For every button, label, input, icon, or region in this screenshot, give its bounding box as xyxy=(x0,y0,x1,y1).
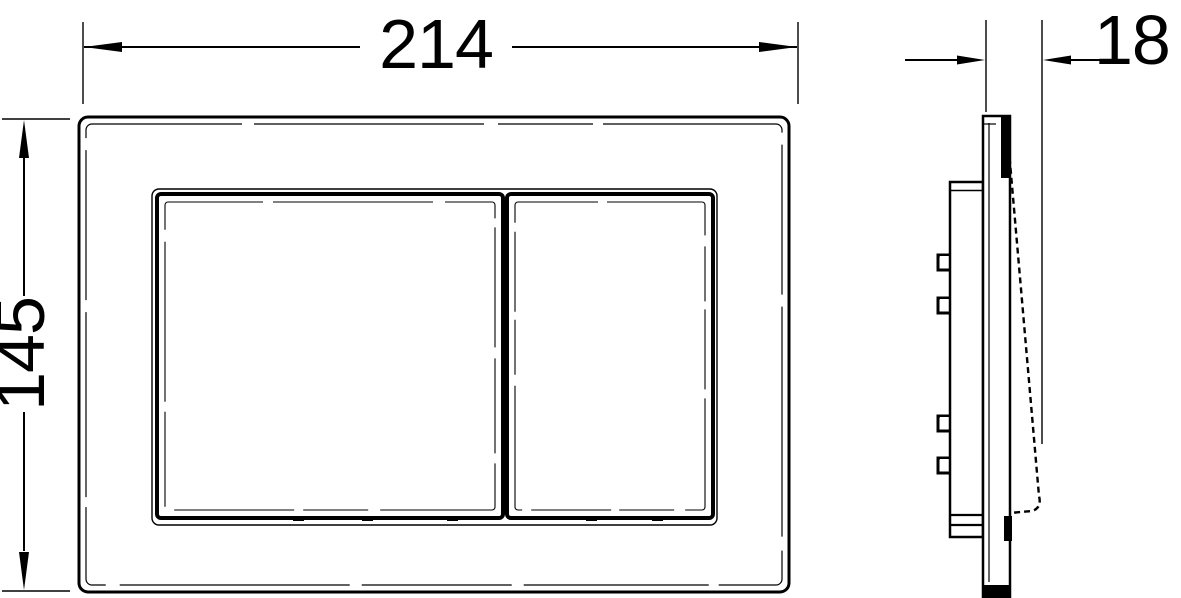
side-plate-top-thick-edge xyxy=(1001,117,1010,178)
arrowhead-left-icon xyxy=(1043,56,1071,65)
front-view xyxy=(79,117,789,592)
technical-drawing-svg: 214 145 18 xyxy=(0,0,1181,598)
plate-outline xyxy=(79,117,789,592)
open-position-dashed-outline xyxy=(1007,128,1040,513)
right-flush-button-inner xyxy=(515,202,705,510)
arrowhead-up-icon xyxy=(19,120,29,158)
dimension-height-label: 145 xyxy=(0,297,59,411)
right-flush-button xyxy=(507,194,713,518)
side-plate-bottom-cap xyxy=(983,585,1010,597)
dimension-width-label: 214 xyxy=(379,5,493,83)
button-recess-frame xyxy=(152,189,717,525)
side-view xyxy=(938,116,1040,597)
arrowhead-down-icon xyxy=(19,552,29,590)
side-plate-lower-thick-edge xyxy=(1004,516,1012,541)
arrowhead-left-icon xyxy=(84,42,122,52)
mounting-box xyxy=(950,182,983,537)
technical-drawing-page: 214 145 18 xyxy=(0,0,1181,598)
arrowhead-right-icon xyxy=(957,56,985,65)
dimension-depth-label: 18 xyxy=(1094,1,1170,79)
left-flush-button xyxy=(157,194,503,518)
arrowhead-right-icon xyxy=(759,42,797,52)
left-flush-button-inner xyxy=(165,202,495,510)
